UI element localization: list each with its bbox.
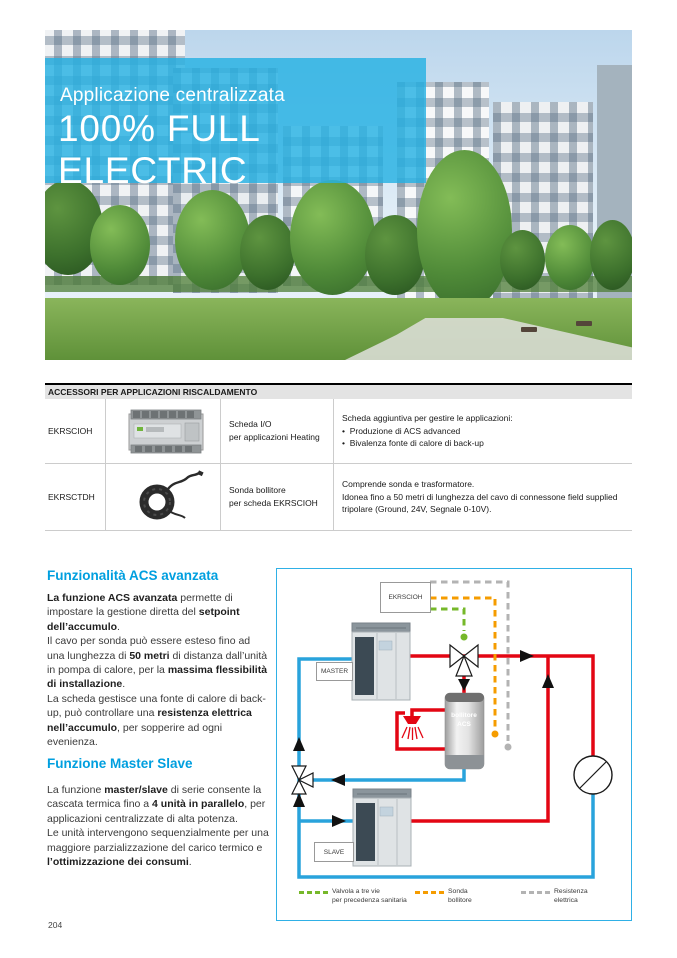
product-image-cell [105,399,220,463]
valve-signal-line [430,609,464,631]
resistance-sensor-dot [505,744,512,751]
tank-sensor-dot [492,731,499,738]
tank-label: bollitore ACS [440,712,488,730]
product-description: Scheda aggiuntiva per gestire le applica… [333,399,632,463]
legend-item-sensor: Sonda bollitore [415,887,472,905]
section-body-master-slave: La funzione master/slave di serie consen… [47,783,269,869]
slave-unit-image [353,789,411,866]
legend-line: per precedenza sanitaria [332,896,407,905]
tree [365,215,425,295]
three-way-valve-blue [292,766,313,794]
legend-item-valve: Valvola a tre vie per precedenza sanitar… [299,887,407,905]
legend-label: Sonda bollitore [448,887,472,905]
accessory-table-header: ACCESSORI PER APPLICAZIONI RISCALDAMENTO [45,383,632,399]
product-name-line: per scheda EKRSCIOH [229,497,325,510]
schematic-drawing [277,569,630,919]
product-code: EKRSCIOH [45,399,105,463]
legend-line: Resistenza [554,887,588,896]
gray-dash-sample [521,891,550,894]
legend-label: Valvola a tre vie per precedenza sanitar… [332,887,407,905]
section-heading-master-slave: Funzione Master Slave [47,756,193,771]
title-overlay: Applicazione centralizzata 100% FULL ELE… [45,58,426,183]
heating-load-icon [574,756,612,794]
product-name-line: Scheda I/O [229,418,325,431]
bench [576,321,592,326]
tree [90,205,150,285]
product-name: Scheda I/O per applicazioni Heating [220,399,333,463]
valve-signal-dot [461,634,468,641]
table-row: EKRSCTDH Sonda bollitore per scheda EKRS… [45,464,632,531]
product-name-line: per applicazioni Heating [229,431,325,444]
tree [500,230,545,290]
schematic-diagram: EKRSCIOH MASTER SLAVE bollitore ACS Valv… [276,568,632,921]
tree [175,190,250,290]
controller-label-box: EKRSCIOH [380,582,431,613]
green-dash-sample [299,891,328,894]
slave-label-box: SLAVE [314,842,354,862]
shower-icon [402,716,423,740]
section-body-acs: La funzione ACS avanzata permette di imp… [47,591,269,749]
legend-line: elettrica [554,896,588,905]
tree [240,215,295,290]
product-image-cell [105,464,220,530]
io-module-image [115,405,217,457]
master-label-box: MASTER [316,662,353,681]
hero-title: 100% FULL ELECTRIC [58,108,426,192]
legend-label: Resistenza elettrica [554,887,588,905]
accessory-table: ACCESSORI PER APPLICAZIONI RISCALDAMENTO… [45,383,632,531]
master-unit-image [352,623,410,700]
dhw-tank [445,693,484,769]
hero-photo: Applicazione centralizzata 100% FULL ELE… [45,30,632,360]
legend-item-resistance: Resistenza elettrica [521,887,588,905]
tree [290,180,375,295]
bench [521,327,537,332]
legend-line: Sonda [448,887,472,896]
table-row: EKRSCIOH [45,399,632,464]
legend-line: bollitore [448,896,472,905]
hero-subtitle: Applicazione centralizzata [60,85,285,107]
tree [545,225,595,290]
product-name: Sonda bollitore per scheda EKRSCIOH [220,464,333,530]
catalog-page: Applicazione centralizzata 100% FULL ELE… [0,0,677,958]
product-description: Comprende sonda e trasformatore.Idonea f… [333,464,632,530]
product-code: EKRSCTDH [45,464,105,530]
tree [417,150,512,310]
legend-line: Valvola a tre vie [332,887,407,896]
section-heading-acs: Funzionalità ACS avanzata [47,568,218,583]
product-name-line: Sonda bollitore [229,484,325,497]
tank-label-line: ACS [440,721,488,730]
tree [590,220,632,290]
orange-dash-sample [415,891,444,894]
sensor-cable-image [115,470,217,524]
three-way-valve-red [450,645,478,676]
tank-label-line: bollitore [440,712,488,721]
page-number: 204 [48,920,62,930]
